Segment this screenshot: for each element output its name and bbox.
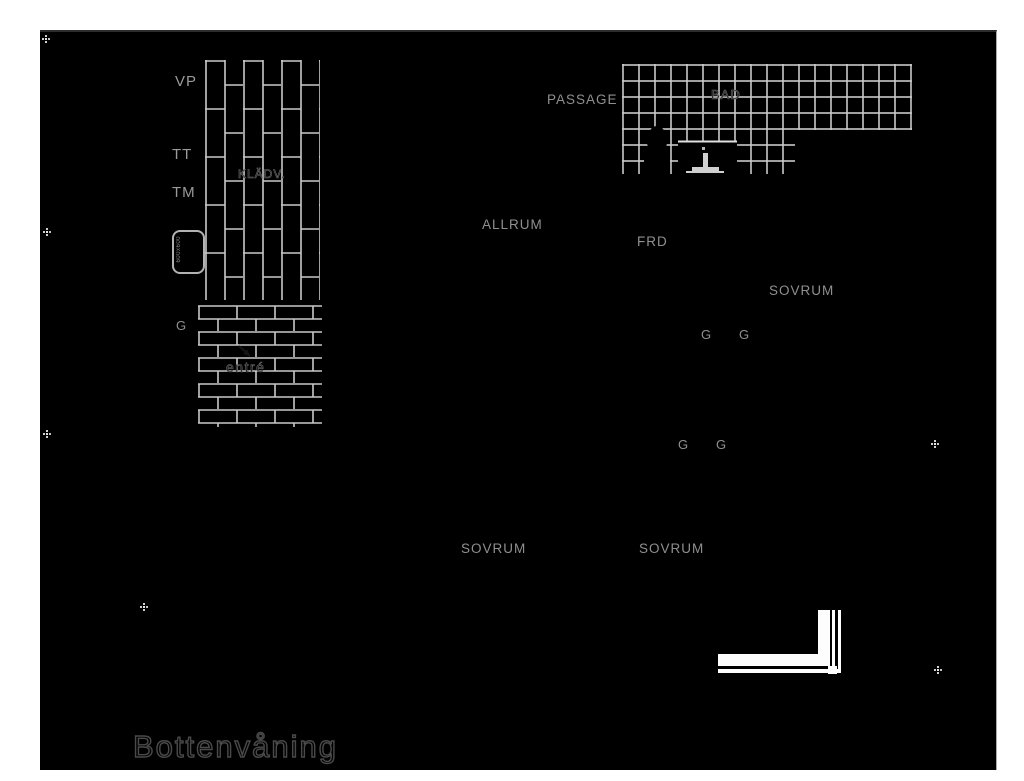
wardrobe-label-g-4: G: [716, 438, 727, 451]
room-label-passage: PASSAGE: [547, 93, 618, 107]
registration-mark-icon: [46, 433, 48, 435]
registration-mark-icon: [46, 231, 48, 233]
room-label-sovrum-3: SOVRUM: [639, 542, 704, 556]
l-shaped-wall-element: [710, 602, 890, 712]
room-label-bad: BAD: [711, 88, 741, 101]
registration-mark-icon: [937, 669, 939, 671]
label-vp: VP: [175, 74, 197, 89]
floor-plan-page: 600x600 VP TT TM PASSAGE ALLRUM FRD SOVR…: [0, 0, 1024, 781]
wardrobe-label-g-2: G: [739, 328, 750, 341]
label-tm: TM: [172, 185, 196, 200]
floor-plan-canvas: 600x600 VP TT TM PASSAGE ALLRUM FRD SOVR…: [40, 30, 997, 770]
wardrobe-label-g-3: G: [678, 438, 689, 451]
bathroom-tile-area: [622, 64, 912, 204]
appliance-dimension-text: 600x600: [176, 236, 182, 263]
wardrobe-label-g-1: G: [701, 328, 712, 341]
room-label-frd: FRD: [637, 235, 668, 249]
wardrobe-label-g-left: G: [176, 319, 187, 332]
room-label-sovrum-2: SOVRUM: [461, 542, 526, 556]
floor-title: Bottenvåning: [133, 731, 338, 762]
room-label-allrum: ALLRUM: [482, 218, 543, 232]
appliance-box: 600x600: [172, 230, 205, 274]
room-label-entre: entré: [226, 360, 265, 374]
label-tt: TT: [172, 147, 192, 162]
registration-mark-icon: [143, 606, 145, 608]
registration-mark-icon: [45, 38, 47, 40]
washbasin-icon: [678, 141, 737, 178]
room-label-kladv: KLÄDV.: [238, 168, 286, 180]
room-label-sovrum-1: SOVRUM: [769, 284, 834, 298]
registration-mark-icon: [934, 443, 936, 445]
